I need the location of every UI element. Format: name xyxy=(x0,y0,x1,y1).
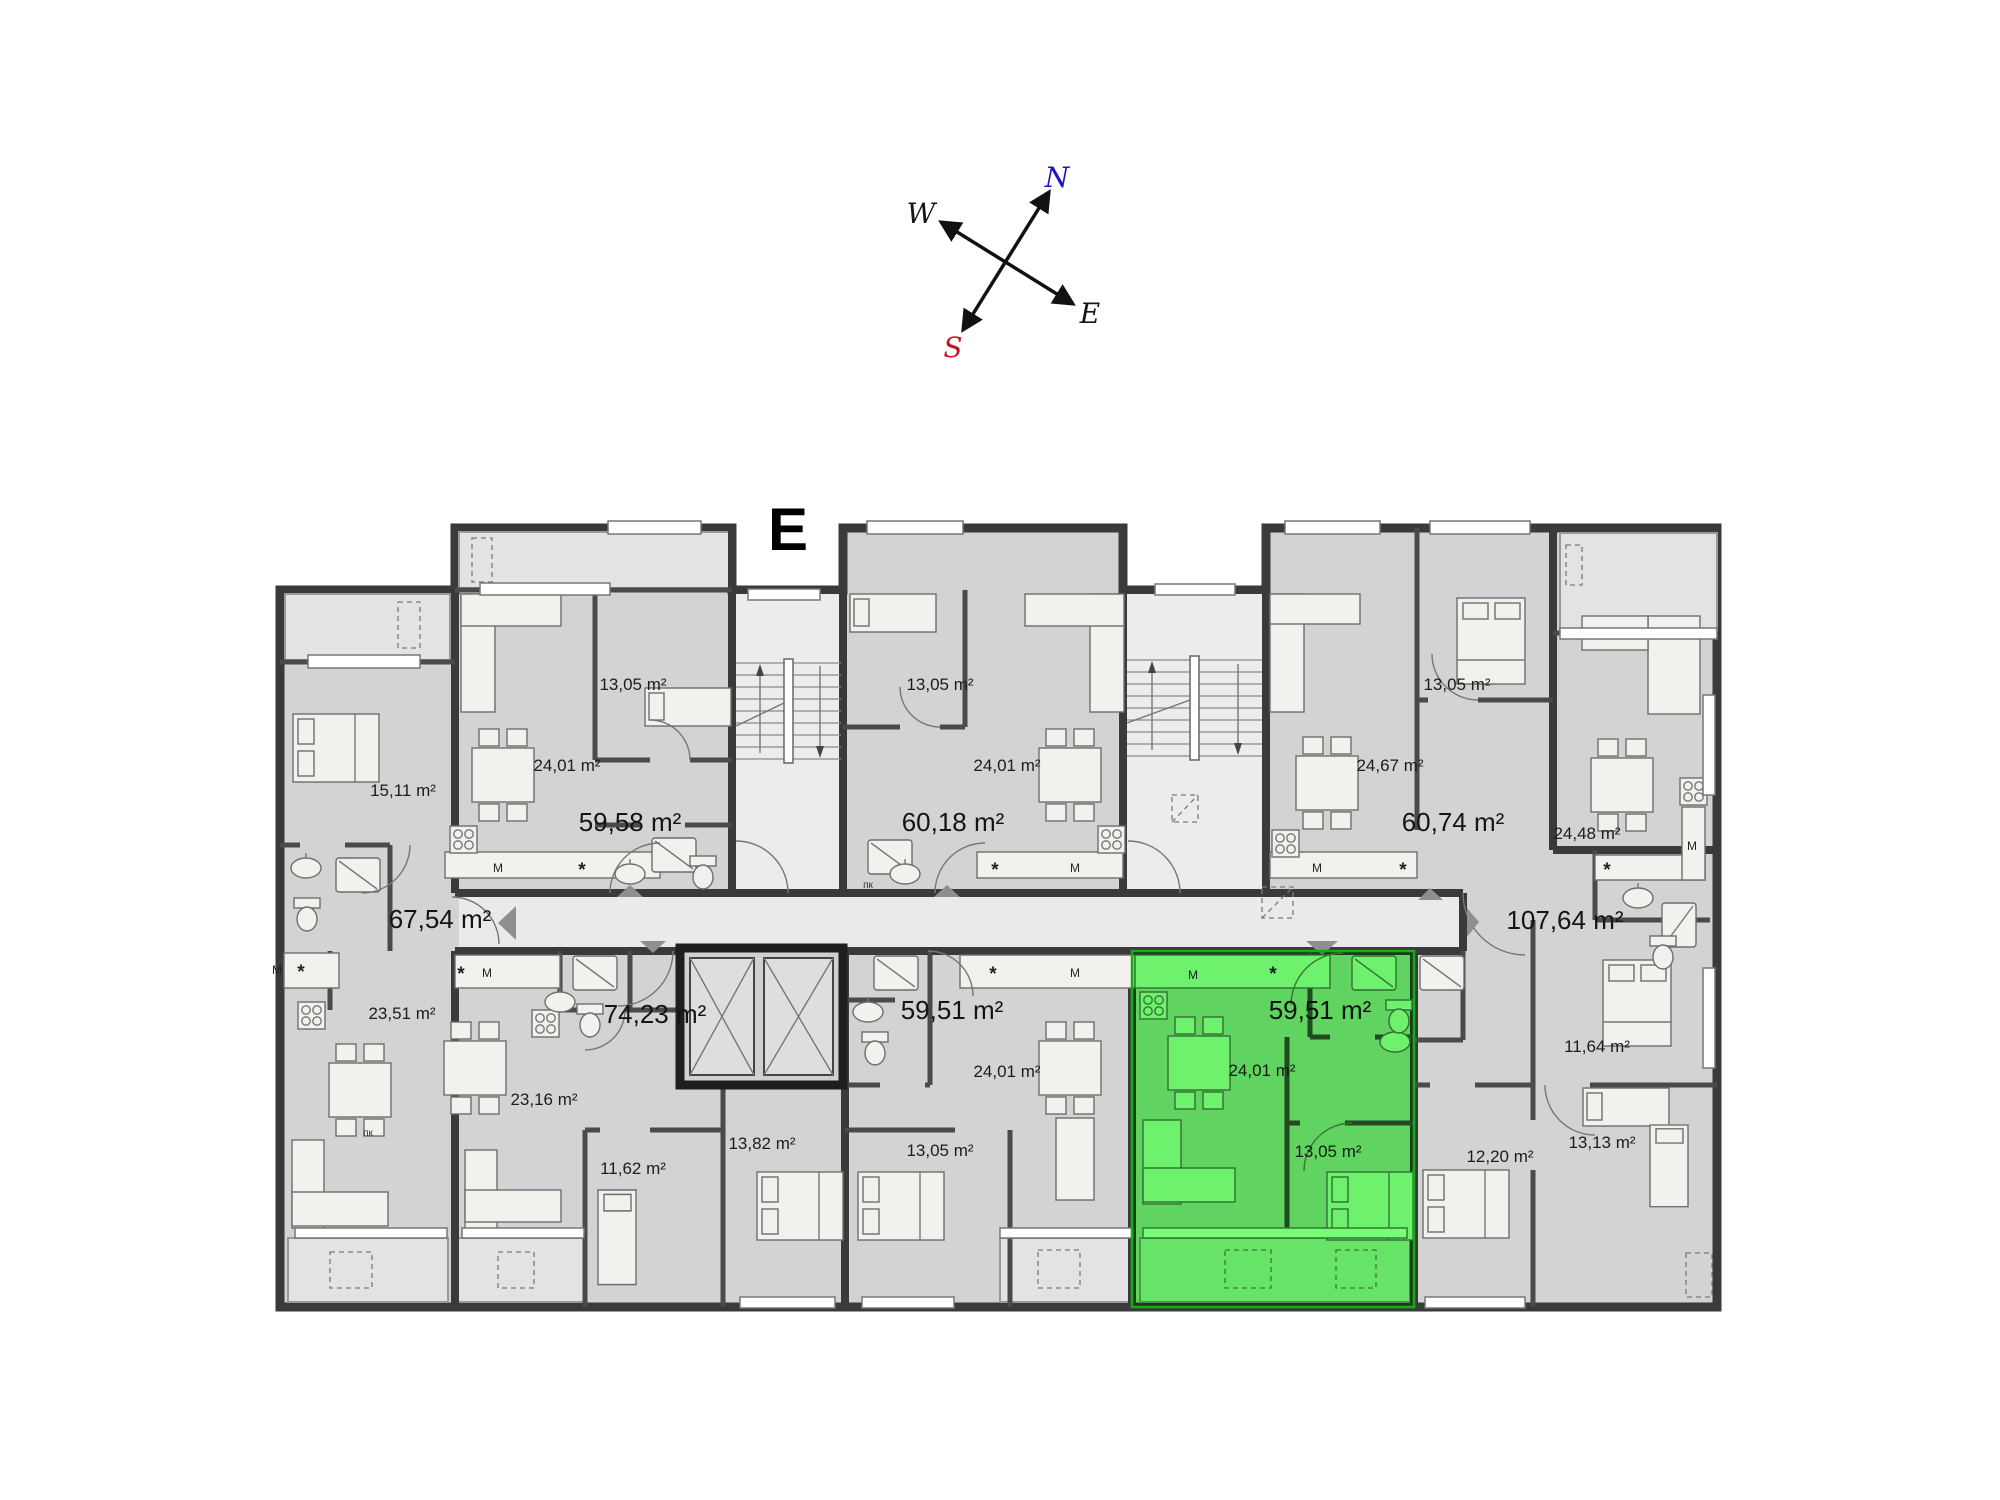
area-label: 24,67 m² xyxy=(1356,756,1423,775)
kitchen-mark: * xyxy=(457,964,465,985)
area-label: 13,05 m² xyxy=(599,675,666,694)
area-label: 15,11 m² xyxy=(370,781,436,800)
area-label: 59,51 m² xyxy=(901,995,1004,1025)
area-label: 11,62 m² xyxy=(600,1159,666,1178)
area-label: 13,13 m² xyxy=(1568,1133,1635,1152)
kitchen-mark: * xyxy=(297,962,305,983)
block-label: E xyxy=(768,496,808,563)
area-label: 60,74 m² xyxy=(1402,807,1505,837)
area-label: 59,58 m² xyxy=(579,807,682,837)
kitchen-mark: M xyxy=(1312,861,1322,875)
stairwell-b xyxy=(1127,656,1262,760)
area-label: 23,51 m² xyxy=(368,1004,435,1023)
kitchen-mark: * xyxy=(1603,860,1611,881)
area-label: 24,48 m² xyxy=(1553,824,1620,843)
floor-plan-page: NWES E xyxy=(0,0,2000,1500)
kitchen-mark: M xyxy=(1070,966,1080,980)
kitchen-mark: M xyxy=(1070,861,1080,875)
kitchen-mark: пк xyxy=(863,880,873,891)
compass-we-arrow xyxy=(941,222,1073,304)
area-label: 11,64 m² xyxy=(1564,1037,1630,1056)
area-label: 67,54 m² xyxy=(389,904,492,934)
compass-letter-e: E xyxy=(1079,297,1100,330)
area-label: 24,01 m² xyxy=(973,1062,1040,1081)
corridor xyxy=(459,897,1459,947)
area-label: 24,01 m² xyxy=(533,756,600,775)
kitchen-mark: M xyxy=(1687,839,1697,853)
stairwell-a xyxy=(736,659,841,763)
kitchen-mark: * xyxy=(1399,860,1407,881)
area-label: 107,64 m² xyxy=(1506,905,1623,935)
area-label: 13,05 m² xyxy=(1423,675,1490,694)
area-label: 24,01 m² xyxy=(973,756,1040,775)
area-label: 13,05 m² xyxy=(906,1141,973,1160)
kitchen-mark: M xyxy=(482,966,492,980)
compass-letter-n: N xyxy=(1044,161,1071,194)
kitchen-mark: M xyxy=(493,861,503,875)
area-label: 23,16 m² xyxy=(510,1090,577,1109)
compass-letter-s: S xyxy=(943,331,962,364)
kitchen-mark: * xyxy=(989,964,997,985)
area-label: 60,18 m² xyxy=(902,807,1005,837)
kitchen-mark: пк xyxy=(363,1128,373,1139)
highlighted-apartment-overlay[interactable] xyxy=(1132,951,1414,1307)
compass-letter-w: W xyxy=(907,197,938,230)
floor-plan-canvas: NWES E xyxy=(0,0,2000,1500)
area-label: 13,82 m² xyxy=(728,1134,795,1153)
area-label: 12,20 m² xyxy=(1466,1147,1533,1166)
compass-rose: NWES xyxy=(907,161,1101,364)
kitchen-mark: M xyxy=(272,963,282,977)
area-label: 13,05 m² xyxy=(906,675,973,694)
area-label: 74,23 m² xyxy=(604,999,707,1029)
kitchen-mark: * xyxy=(991,860,999,881)
kitchen-mark: * xyxy=(578,860,586,881)
